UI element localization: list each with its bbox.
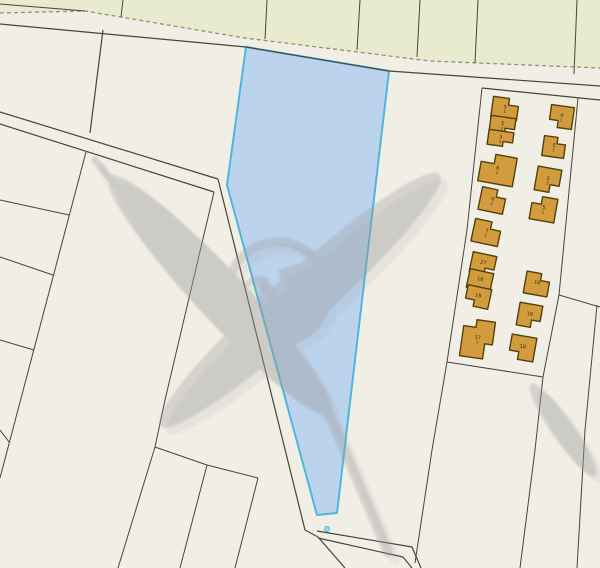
selection-dot (325, 527, 330, 532)
cadastral-map[interactable]: 515231616271271819171415152511616182B2B (0, 0, 600, 568)
building-label: 16 (526, 311, 533, 318)
map-canvas[interactable]: 515231616271271819171415152511616182B2B (0, 0, 600, 568)
building-label: 16 (534, 280, 541, 287)
building-label: 18 (519, 344, 526, 351)
